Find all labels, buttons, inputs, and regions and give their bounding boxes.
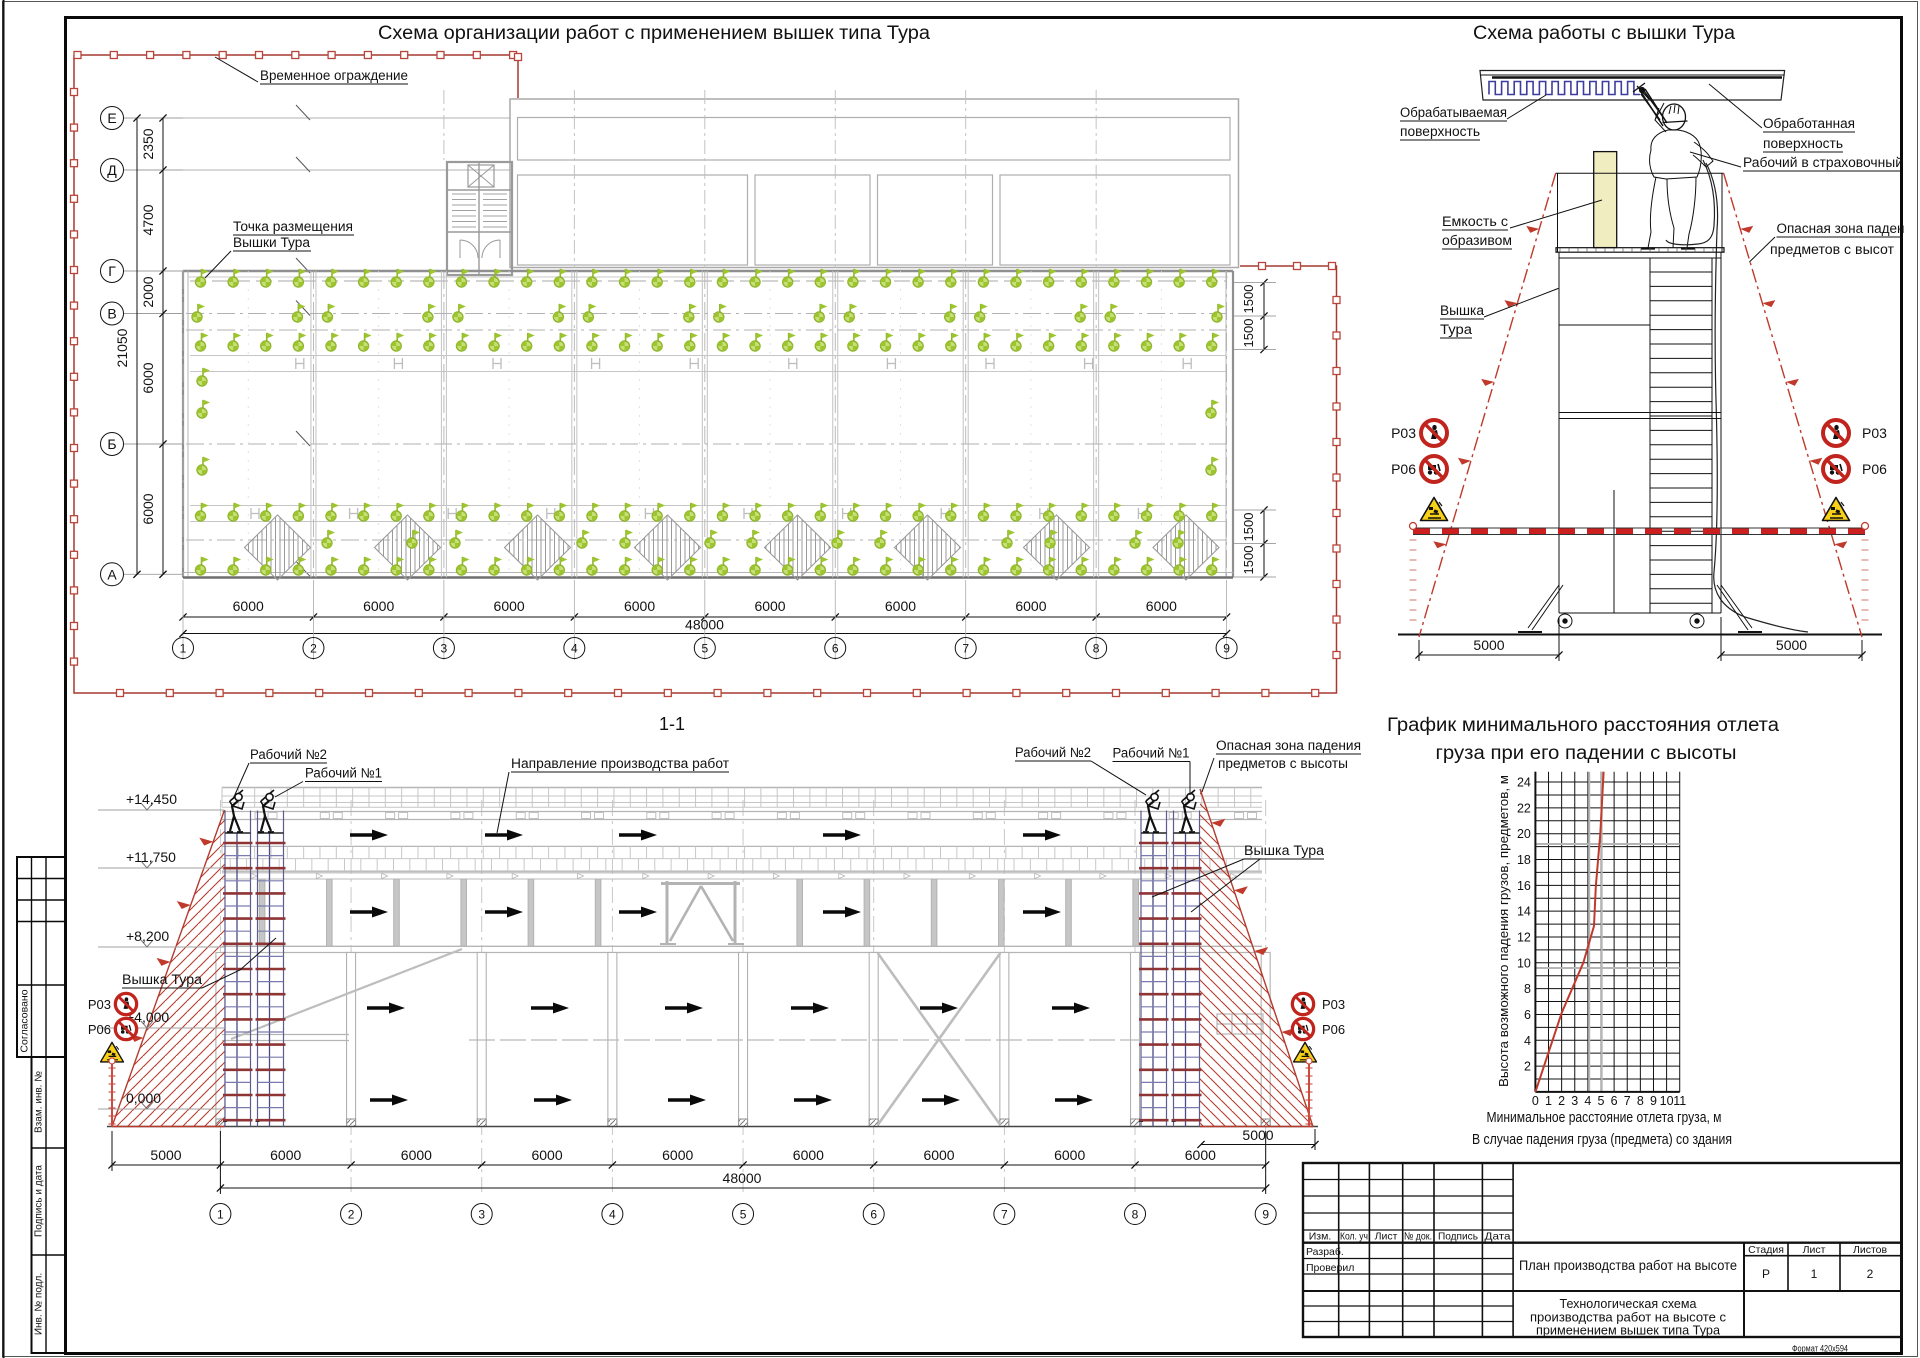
svg-text:6: 6: [1611, 1094, 1618, 1108]
svg-text:Схема работы с вышки Тура: Схема работы с вышки Тура: [1473, 23, 1735, 44]
svg-text:Вышка Тура: Вышка Тура: [1244, 843, 1325, 858]
svg-text:1: 1: [180, 642, 187, 656]
svg-text:5000: 5000: [150, 1147, 181, 1163]
svg-text:3: 3: [478, 1208, 485, 1222]
svg-text:Р03: Р03: [88, 997, 111, 1012]
svg-text:Подпись: Подпись: [1438, 1231, 1479, 1243]
svg-text:6000: 6000: [885, 598, 916, 614]
svg-text:1: 1: [1545, 1094, 1552, 1108]
svg-text:Рабочий №1: Рабочий №1: [305, 766, 382, 781]
svg-text:предметов с высот: предметов с высот: [1770, 242, 1894, 257]
svg-text:образивом: образивом: [1442, 233, 1512, 248]
svg-text:Высота возможного падения груз: Высота возможного падения грузов, предме…: [1496, 775, 1511, 1087]
svg-text:6000: 6000: [793, 1147, 824, 1163]
svg-text:+11,750: +11,750: [126, 849, 176, 865]
svg-text:10: 10: [1517, 956, 1531, 970]
svg-text:Лист: Лист: [1803, 1244, 1826, 1256]
svg-text:6000: 6000: [494, 598, 525, 614]
svg-text:Разраб.: Разраб.: [1306, 1246, 1344, 1258]
svg-text:8: 8: [1093, 642, 1100, 656]
svg-text:Е: Е: [107, 110, 116, 126]
svg-text:В: В: [107, 306, 116, 322]
svg-text:2: 2: [310, 642, 317, 656]
svg-text:Рабочий в страховочный: Рабочий в страховочный: [1743, 155, 1903, 170]
svg-text:1: 1: [217, 1208, 224, 1222]
svg-text:22: 22: [1517, 801, 1531, 815]
svg-text:5: 5: [1598, 1094, 1605, 1108]
svg-text:Лист: Лист: [1375, 1231, 1398, 1243]
svg-text:11: 11: [1673, 1094, 1686, 1108]
svg-text:10: 10: [1660, 1094, 1674, 1108]
svg-text:9: 9: [1262, 1208, 1269, 1222]
svg-text:14: 14: [1517, 905, 1531, 919]
svg-text:А: А: [107, 566, 117, 582]
svg-text:3: 3: [1571, 1094, 1578, 1108]
svg-text:2: 2: [1558, 1094, 1565, 1108]
svg-text:48000: 48000: [685, 617, 724, 633]
svg-text:6000: 6000: [140, 493, 156, 524]
svg-text:7: 7: [1624, 1094, 1631, 1108]
svg-text:2000: 2000: [140, 276, 156, 307]
svg-text:груза при его падении с высоты: груза при его падении с высоты: [1436, 743, 1737, 764]
svg-text:1-1: 1-1: [659, 714, 685, 734]
svg-text:6000: 6000: [1185, 1147, 1216, 1163]
svg-text:9: 9: [1223, 642, 1230, 656]
svg-text:поверхность: поверхность: [1763, 136, 1843, 151]
svg-text:Технологическая схема: Технологическая схема: [1560, 1297, 1697, 1311]
svg-text:5000: 5000: [1242, 1127, 1273, 1143]
svg-text:2: 2: [1867, 1267, 1874, 1281]
svg-text:Рабочий №2: Рабочий №2: [250, 747, 327, 762]
svg-text:6: 6: [832, 642, 839, 656]
svg-text:Изм.: Изм.: [1309, 1231, 1332, 1243]
svg-text:Р03: Р03: [1322, 997, 1345, 1012]
svg-text:1: 1: [1811, 1267, 1818, 1281]
svg-text:Кол. уч: Кол. уч: [1340, 1231, 1368, 1243]
svg-text:Р: Р: [1762, 1267, 1770, 1281]
svg-text:Инв. № подл.: Инв. № подл.: [34, 1273, 45, 1335]
svg-text:Р06: Р06: [1862, 461, 1887, 477]
svg-text:предметов с высоты: предметов с высоты: [1218, 756, 1348, 771]
svg-text:24: 24: [1517, 776, 1531, 790]
svg-text:5: 5: [701, 642, 708, 656]
svg-text:6000: 6000: [401, 1147, 432, 1163]
svg-text:Подпись и дата: Подпись и дата: [34, 1165, 45, 1237]
svg-text:Р03: Р03: [1862, 425, 1887, 441]
svg-text:Опасная зона падения: Опасная зона падения: [1216, 738, 1361, 753]
svg-text:0: 0: [1532, 1094, 1539, 1108]
svg-text:1500: 1500: [1241, 546, 1256, 575]
svg-text:6000: 6000: [1015, 598, 1046, 614]
svg-text:6000: 6000: [270, 1147, 301, 1163]
svg-text:поверхность: поверхность: [1400, 124, 1480, 139]
svg-text:Схема организации работ с прим: Схема организации работ с применением вы…: [378, 23, 930, 44]
svg-text:6000: 6000: [531, 1147, 562, 1163]
svg-text:Рабочий №1: Рабочий №1: [1113, 746, 1190, 761]
svg-text:Стадия: Стадия: [1748, 1244, 1784, 1256]
svg-text:Рабочий №2: Рабочий №2: [1015, 745, 1091, 760]
svg-text:7: 7: [1001, 1208, 1008, 1222]
svg-text:6000: 6000: [754, 598, 785, 614]
svg-text:6000: 6000: [1054, 1147, 1085, 1163]
svg-text:Обработанная: Обработанная: [1763, 116, 1855, 131]
svg-text:6: 6: [870, 1208, 877, 1222]
svg-text:6000: 6000: [923, 1147, 954, 1163]
svg-text:9: 9: [1650, 1094, 1657, 1108]
svg-text:0,000: 0,000: [126, 1090, 161, 1106]
svg-text:Временное ограждение: Временное ограждение: [260, 68, 408, 83]
svg-text:20: 20: [1517, 827, 1531, 841]
svg-text:применением вышек типа Тура: применением вышек типа Тура: [1536, 1324, 1720, 1338]
svg-text:Направление производства работ: Направление производства работ: [511, 756, 729, 771]
svg-text:5000: 5000: [1473, 637, 1504, 653]
svg-text:16: 16: [1517, 879, 1531, 893]
svg-text:Р03: Р03: [1391, 425, 1416, 441]
svg-text:21050: 21050: [114, 328, 130, 367]
svg-text:План производства работ на выс: План производства работ на высоте: [1519, 1258, 1737, 1273]
svg-text:Дата: Дата: [1485, 1231, 1511, 1243]
svg-text:2: 2: [348, 1208, 355, 1222]
svg-text:2: 2: [1524, 1060, 1531, 1074]
svg-text:8: 8: [1524, 982, 1531, 996]
svg-text:1500: 1500: [1241, 513, 1256, 542]
svg-text:Точка размещения: Точка размещения: [233, 219, 353, 234]
svg-text:1500: 1500: [1241, 319, 1256, 348]
svg-text:Взам. инв. №: Взам. инв. №: [34, 1071, 45, 1133]
svg-text:4: 4: [571, 642, 578, 656]
svg-text:+14,450: +14,450: [126, 791, 177, 807]
svg-text:Вышка: Вышка: [1440, 303, 1484, 318]
svg-text:Д: Д: [107, 162, 117, 178]
svg-text:Вышка Тура: Вышка Тура: [122, 972, 203, 987]
svg-text:Тура: Тура: [1440, 322, 1473, 337]
svg-text:Обрабатываемая: Обрабатываемая: [1400, 105, 1507, 120]
svg-text:6: 6: [1524, 1008, 1531, 1022]
svg-text:6000: 6000: [624, 598, 655, 614]
svg-text:6000: 6000: [140, 362, 156, 393]
svg-text:6000: 6000: [363, 598, 394, 614]
svg-text:Б: Б: [107, 436, 116, 452]
svg-text:5000: 5000: [1776, 637, 1807, 653]
svg-text:8: 8: [1132, 1208, 1139, 1222]
svg-text:7: 7: [962, 642, 969, 656]
svg-text:8: 8: [1637, 1094, 1644, 1108]
svg-text:Минимальное расстояние отлета: Минимальное расстояние отлета груза, м: [1487, 1110, 1722, 1126]
svg-text:48000: 48000: [723, 1170, 762, 1186]
svg-text:6000: 6000: [233, 598, 264, 614]
svg-text:Емкость с: Емкость с: [1442, 214, 1508, 229]
svg-text:Вышки Тура: Вышки Тура: [233, 235, 310, 250]
svg-text:+8,200: +8,200: [126, 928, 169, 944]
svg-text:В случае падения груза (предме: В случае падения груза (предмета) со зда…: [1472, 1132, 1732, 1148]
svg-text:Листов: Листов: [1853, 1244, 1888, 1256]
svg-text:производства работ на высоте с: производства работ на высоте с: [1530, 1311, 1726, 1325]
svg-text:2350: 2350: [140, 128, 156, 159]
svg-text:1500: 1500: [1241, 285, 1256, 314]
svg-text:Опасная зона паден: Опасная зона паден: [1777, 221, 1905, 236]
svg-text:6000: 6000: [1146, 598, 1177, 614]
svg-text:Формат 420х594: Формат 420х594: [1792, 1344, 1848, 1354]
svg-text:3: 3: [441, 642, 448, 656]
svg-text:4: 4: [1524, 1034, 1531, 1048]
svg-text:5: 5: [740, 1208, 747, 1222]
svg-text:График минимального расстояния: График минимального расстояния отлета: [1387, 715, 1779, 736]
svg-text:Р06: Р06: [1322, 1022, 1345, 1037]
svg-text:12: 12: [1517, 930, 1531, 944]
svg-text:4: 4: [609, 1208, 616, 1222]
svg-text:Р06: Р06: [1391, 461, 1416, 477]
svg-text:4: 4: [1584, 1094, 1591, 1108]
svg-text:Р06: Р06: [88, 1022, 111, 1037]
svg-text:Г: Г: [108, 263, 116, 279]
svg-text:4700: 4700: [140, 204, 156, 235]
svg-text:6000: 6000: [662, 1147, 693, 1163]
svg-text:Проверил: Проверил: [1306, 1262, 1354, 1274]
svg-text:№ док.: № док.: [1404, 1231, 1432, 1243]
svg-text:18: 18: [1517, 853, 1531, 867]
svg-text:Согласовано: Согласовано: [19, 989, 31, 1052]
